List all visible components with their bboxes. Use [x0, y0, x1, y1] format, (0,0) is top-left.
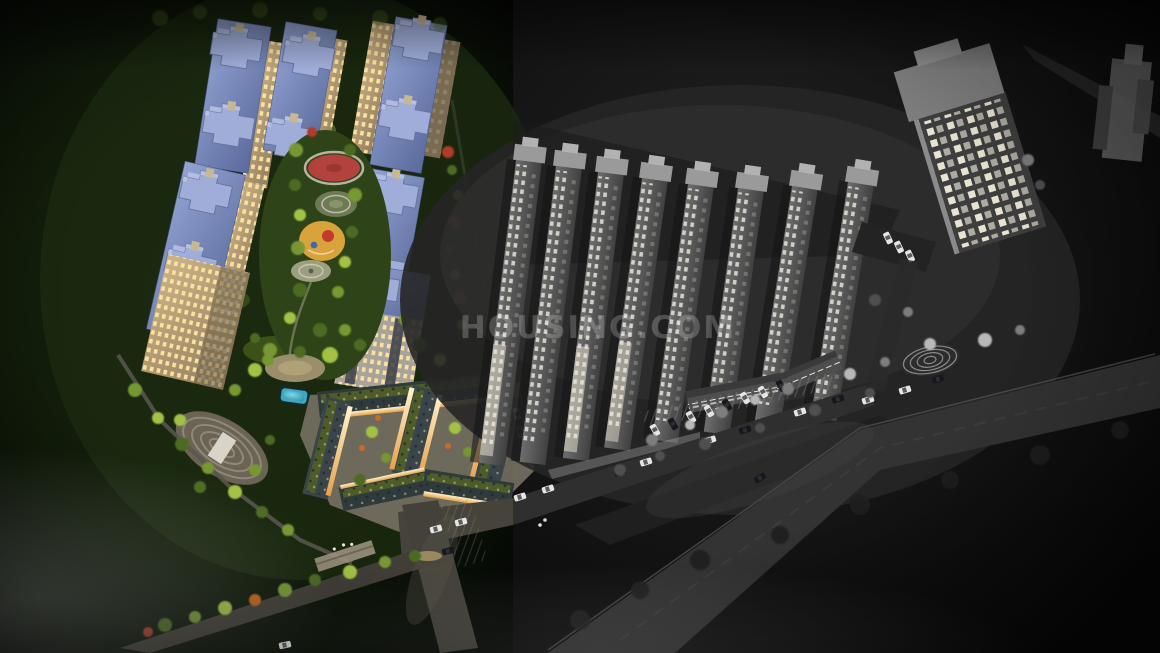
atmosphere: [0, 0, 1160, 653]
night-aerial-render: HOUSING.COM: [0, 0, 1160, 653]
vignette: [0, 0, 1160, 653]
scene-canvas: HOUSING.COM: [0, 0, 1160, 653]
